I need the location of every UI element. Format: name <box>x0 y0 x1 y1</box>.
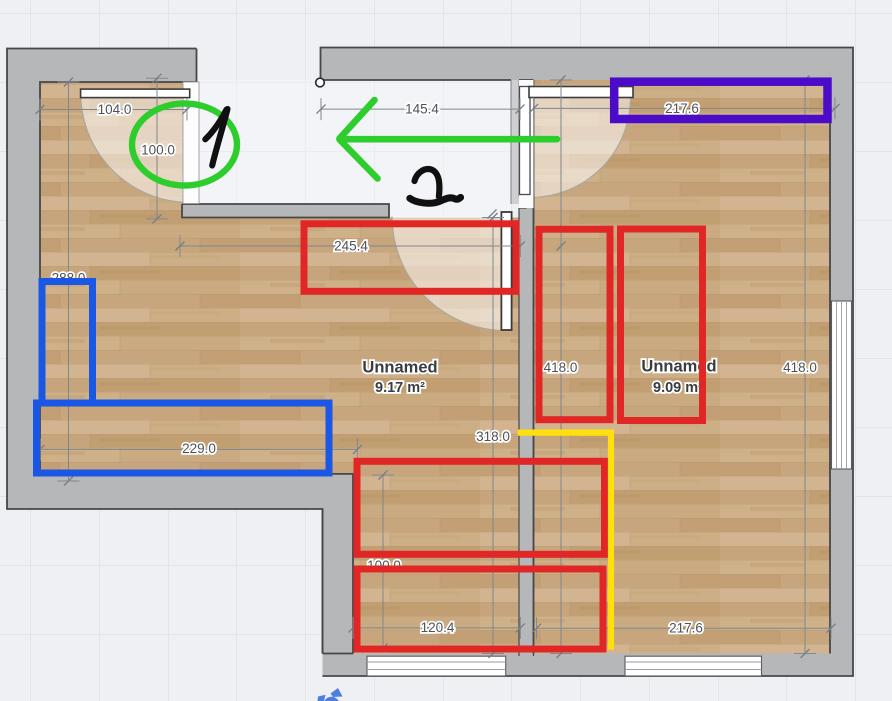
svg-text:Unnamed: Unnamed <box>362 359 437 377</box>
svg-text:120.4: 120.4 <box>421 620 455 635</box>
svg-text:9.09 m²: 9.09 m² <box>653 380 703 396</box>
svg-text:104.0: 104.0 <box>98 102 132 117</box>
svg-text:9.17 m²: 9.17 m² <box>375 380 425 396</box>
svg-text:145.4: 145.4 <box>405 101 439 116</box>
svg-text:245.4: 245.4 <box>334 238 368 253</box>
svg-text:100.0: 100.0 <box>141 143 175 158</box>
svg-text:217.6: 217.6 <box>669 620 703 635</box>
svg-text:229.0: 229.0 <box>182 441 216 456</box>
svg-text:318.0: 318.0 <box>476 429 510 444</box>
svg-text:217.6: 217.6 <box>665 101 699 116</box>
svg-text:418.0: 418.0 <box>783 360 817 375</box>
svg-text:418.0: 418.0 <box>544 360 578 375</box>
